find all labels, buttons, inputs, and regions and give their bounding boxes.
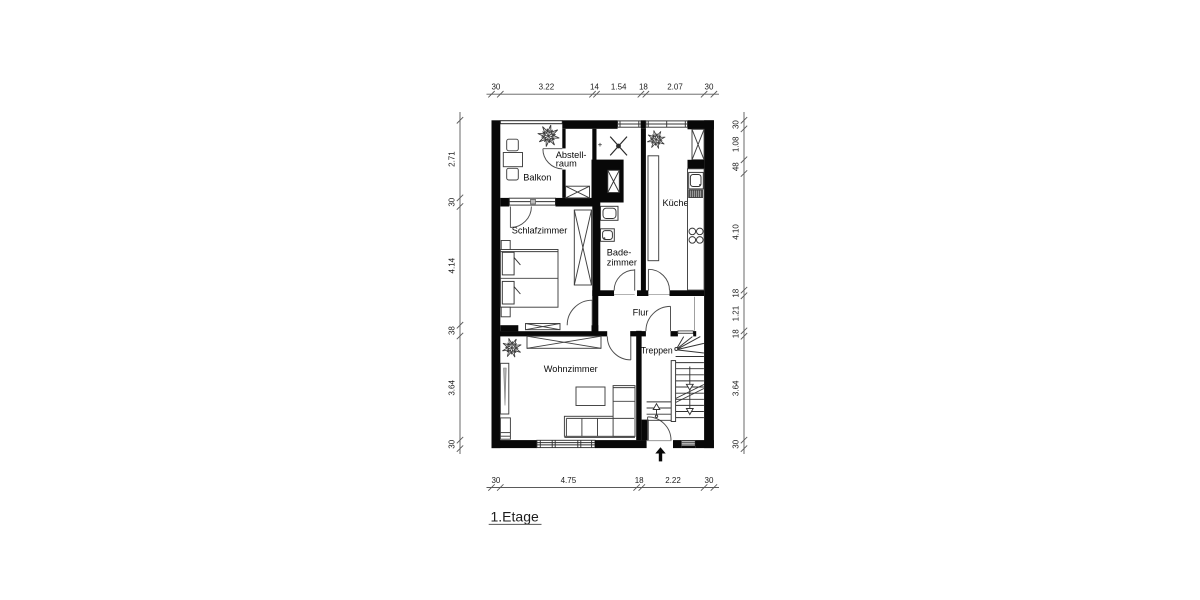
svg-text:Schlafzimmer: Schlafzimmer xyxy=(512,225,568,235)
svg-text:2.07: 2.07 xyxy=(667,83,683,92)
svg-text:30: 30 xyxy=(491,476,500,485)
svg-text:18: 18 xyxy=(732,288,741,297)
svg-text:2.22: 2.22 xyxy=(665,476,681,485)
svg-text:30: 30 xyxy=(732,120,741,129)
svg-text:30: 30 xyxy=(448,439,457,448)
svg-text:38: 38 xyxy=(448,326,457,335)
svg-text:14: 14 xyxy=(590,83,599,92)
svg-text:1.Etage: 1.Etage xyxy=(491,509,539,525)
svg-text:raum: raum xyxy=(556,158,577,168)
svg-text:18: 18 xyxy=(639,83,648,92)
svg-text:3.22: 3.22 xyxy=(539,83,555,92)
svg-text:Flur: Flur xyxy=(633,307,649,317)
svg-text:Küche: Küche xyxy=(663,198,689,208)
svg-text:1.54: 1.54 xyxy=(611,83,627,92)
svg-text:48: 48 xyxy=(732,162,741,171)
svg-text:3.64: 3.64 xyxy=(448,380,457,396)
svg-text:Treppen: Treppen xyxy=(641,346,673,356)
svg-text:Balkon: Balkon xyxy=(523,173,551,183)
svg-text:4.14: 4.14 xyxy=(448,257,457,273)
svg-text:3.64: 3.64 xyxy=(732,380,741,396)
svg-text:30: 30 xyxy=(491,83,500,92)
svg-text:30: 30 xyxy=(705,476,714,485)
svg-text:1.21: 1.21 xyxy=(732,305,741,321)
svg-text:Bade-: Bade- xyxy=(607,248,632,258)
svg-text:2.71: 2.71 xyxy=(448,151,457,167)
svg-text:30: 30 xyxy=(732,439,741,448)
svg-text:30: 30 xyxy=(705,83,714,92)
svg-text:30: 30 xyxy=(448,197,457,206)
svg-text:4.10: 4.10 xyxy=(732,224,741,240)
svg-text:18: 18 xyxy=(732,329,741,338)
svg-text:zimmer: zimmer xyxy=(607,257,637,267)
svg-text:Wohnzimmer: Wohnzimmer xyxy=(544,364,598,374)
svg-text:18: 18 xyxy=(635,476,644,485)
svg-text:4.75: 4.75 xyxy=(561,476,577,485)
svg-text:1.08: 1.08 xyxy=(732,136,741,152)
